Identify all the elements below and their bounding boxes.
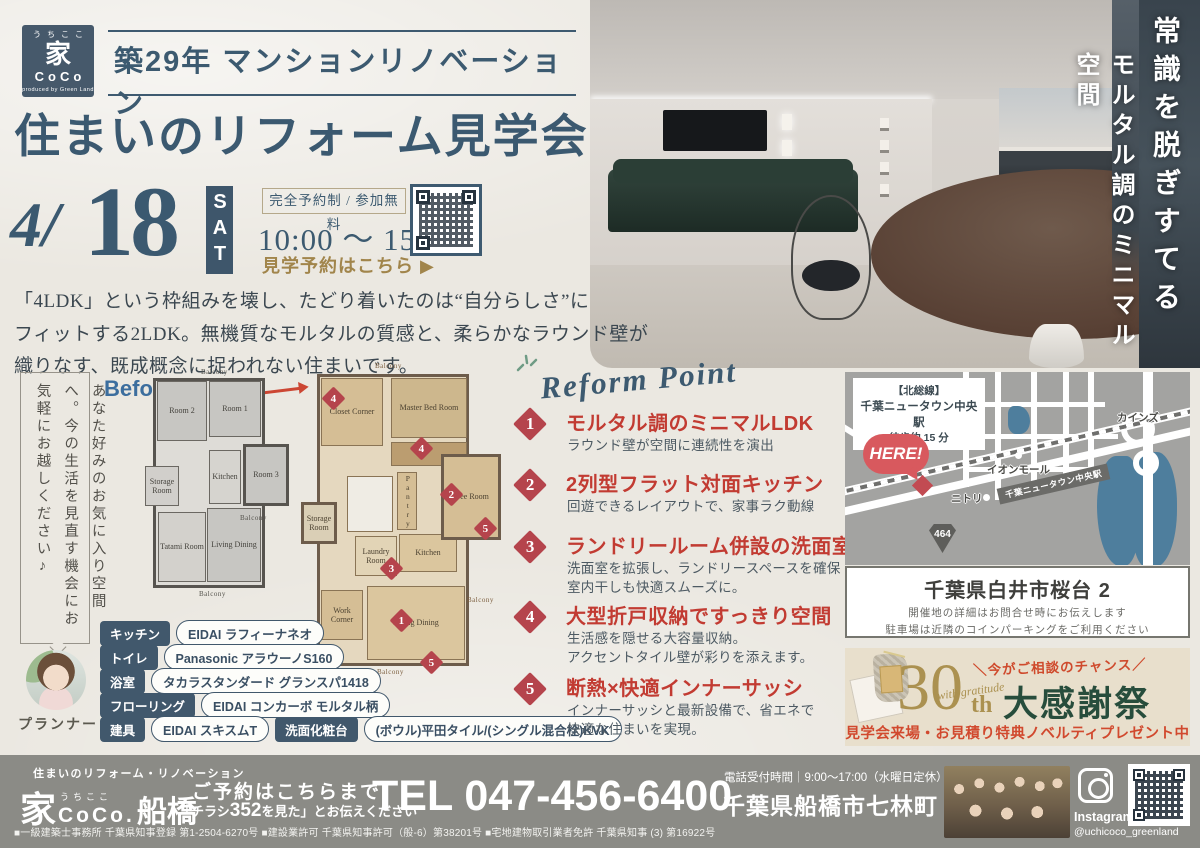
balcony-label: Balcony: [201, 368, 228, 376]
photo-caption-1: 常識を脱ぎすてる: [1144, 16, 1184, 320]
before-floor-plan: Balcony Room 2 Room 1 Storage Room Kitch…: [143, 368, 293, 600]
event-month: 4/: [10, 188, 60, 262]
qr-eye: [1133, 769, 1145, 781]
reform-point-desc: 洗面室を拡張し、ランドリースペースを確保: [567, 559, 841, 579]
room-label: Tatami Room: [158, 512, 206, 582]
spec-value: タカラスタンダード グランスパ1418: [151, 668, 381, 694]
footer-bar: 住まいのリフォーム・リノベーション 家 うちここ CoCo. 船橋 ご予約はこち…: [0, 755, 1200, 848]
logo-kanji: 家: [45, 40, 71, 69]
access-map: 【北総線】 千葉ニュータウン中央駅 徒歩約 15 分 HERE! カインズ イオ…: [845, 372, 1190, 565]
phone-number[interactable]: TEL 047-456-6400: [372, 772, 732, 821]
room-label: Room 3: [243, 444, 289, 506]
event-title: 住まいのリフォーム見学会: [14, 100, 589, 166]
event-weekday: SAT: [208, 191, 231, 269]
spec-label: 洗面化粧台: [275, 717, 358, 742]
reform-point-desc: アクセントタイル壁が彩りを添えます。: [567, 648, 813, 668]
qr-eye: [416, 236, 430, 250]
room-label: Pantry: [397, 472, 417, 530]
reform-point-number: 4: [513, 600, 547, 634]
spec-label: 浴室: [100, 669, 145, 694]
reform-point-desc: 快適な住まいを実現。: [567, 720, 705, 740]
balcony-label: Balcony: [240, 514, 267, 522]
footer-brand-furigana: うちここ: [60, 790, 112, 803]
intro-line-2: フィットする2LDK。無機質なモルタルの質感と、柔らかなラウンド壁が: [14, 319, 648, 352]
spec-label: 建具: [100, 717, 145, 742]
header-rule-top: [108, 30, 576, 32]
spec-value: Panasonic アラウーノS160: [164, 644, 345, 670]
balcony-label: Balcony: [199, 590, 226, 598]
event-weekday-box: SAT: [206, 186, 233, 274]
header-rule-bottom: [108, 94, 576, 96]
map-water: [1008, 406, 1030, 434]
phone-hours: 電話受付時間｜9:00〜17:00（水曜日定休）: [724, 769, 948, 785]
license-line: ■一級建築士事務所 千葉県知事登録 第1-2504-6270号 ■建設業許可 千…: [14, 824, 715, 839]
team-photo: [944, 766, 1070, 838]
map-poi-dot: [983, 494, 990, 501]
route-464-shield: 464: [929, 524, 956, 553]
shelf-niche: [782, 114, 792, 130]
spec-row: トイレ Panasonic アラウーノS160: [100, 644, 344, 670]
after-floor-plan: Balcony Closet Corner Master Bed Room St…: [305, 360, 510, 682]
tv-screen: [663, 110, 767, 150]
map-poi-label: カインズ: [1117, 410, 1159, 425]
qr-eye: [1173, 769, 1185, 781]
pantry-label: Pantry: [403, 474, 412, 528]
venue-note-2: 駐車場は近隣のコインパーキングをご利用ください: [847, 622, 1188, 637]
instagram-qr-code[interactable]: [1128, 764, 1190, 826]
sparkle-icon: [514, 352, 540, 376]
venue-box: 千葉県白井市桜台 2 開催地の詳細はお問合せ時にお伝えします 駐車場は近隣のコイ…: [845, 566, 1190, 638]
wall-slit-windows: [880, 118, 889, 199]
event-day: 18: [84, 164, 176, 279]
room-label: Room 2: [157, 381, 207, 441]
reform-point-title: 断熱×快適インナーサッシ: [566, 672, 803, 701]
balcony-label: Balcony: [377, 668, 404, 676]
anniversary-title: 大感謝祭: [1003, 676, 1151, 727]
spec-label: トイレ: [100, 645, 158, 670]
reform-point-title: ランドリールーム併設の洗面室: [566, 530, 852, 559]
spec-value: EIDAI ラフィーナネオ: [176, 620, 324, 646]
anniversary-note: 見学会来場・お見積り特典ノベルティプレゼント中: [845, 722, 1190, 743]
spec-row: キッチン EIDAI ラフィーナネオ: [100, 620, 324, 646]
station-line: 千葉ニュータウン中央駅: [855, 398, 983, 430]
reform-point-number: 3: [513, 530, 547, 564]
room-label: Living Dining: [367, 586, 465, 660]
intro-line-1: 「4LDK」という枠組みを壊し、たどり着いたのは“自分らしさ”に: [14, 286, 648, 319]
balcony-label: Balcony: [467, 596, 494, 604]
bath-area: [347, 476, 393, 532]
shelf-niche: [782, 140, 792, 156]
venue-note-1: 開催地の詳細はお問合せ時にお伝えします: [847, 605, 1188, 620]
reform-point-number: 2: [513, 468, 547, 502]
reform-point-title: 大型折戸収納ですっきり空間: [566, 600, 832, 629]
booking-qr-code[interactable]: [410, 184, 482, 256]
room-label: Storage Room: [145, 466, 179, 506]
anniversary-banner: ＼今がご相談のチャンス／ 30 with gratitude th 大感謝祭 見…: [845, 648, 1190, 746]
qr-eye: [462, 190, 476, 204]
reform-point-number: 1: [513, 407, 547, 441]
spec-label: フローリング: [100, 693, 195, 718]
reform-point-number: 5: [513, 672, 547, 706]
spec-row: 浴室 タカラスタンダード グランスパ1418: [100, 668, 381, 694]
instagram-handle[interactable]: @uchicoco_greenland: [1074, 826, 1179, 838]
reform-point-title: 2列型フラット対面キッチン: [566, 468, 824, 497]
room-label: Storage Room: [301, 502, 337, 544]
wire-chair: [791, 195, 870, 320]
brand-logo: うちここ 家 CoCo produced by Green Land: [22, 25, 94, 97]
reform-point-desc: 回遊できるレイアウトで、家事ラク動線: [567, 497, 815, 517]
spec-row: フローリング EIDAI コンカーボ モルタル柄: [100, 692, 390, 718]
logo-byline: produced by Green Land: [22, 87, 94, 93]
here-balloon: HERE!: [863, 434, 929, 474]
planner-message: あなた好みのお気に入り空間へ。今の生活を見直す機会にお気軽にお越しください♪: [28, 383, 111, 633]
reservation-badge: 完全予約制 / 参加無料: [262, 188, 406, 214]
logo-name: CoCo: [35, 69, 86, 84]
flyer: 常識を脱ぎすてる モルタル調のミニマル空間 うちここ 家 CoCo produc…: [0, 0, 1200, 848]
map-interchange: [1133, 450, 1159, 476]
qr-eye: [416, 190, 430, 204]
planner-role-label: プランナー: [18, 714, 98, 734]
room-label: Kitchen: [209, 450, 241, 504]
room-label: Room 1: [209, 381, 261, 437]
spec-value: EIDAI スキスムT: [151, 716, 269, 742]
reform-point-desc: 室内干しも快適スムーズに。: [567, 578, 746, 598]
reserve2-flyer-number: 352: [230, 800, 262, 821]
footer-brand-coco-wrap: うちここ CoCo.: [58, 794, 135, 828]
planner-speech-bubble: あなた好みのお気に入り空間へ。今の生活を見直す機会にお気軽にお越しください♪: [20, 372, 90, 644]
reserve2-pre: 「チラシ: [178, 804, 230, 819]
map-poi-label: イオンモール: [987, 462, 1050, 477]
room-label: Master Bed Room: [391, 378, 467, 438]
reform-point-desc: ラウンド壁が空間に連続性を演出: [567, 436, 774, 456]
interior-photo: 常識を脱ぎすてる モルタル調のミニマル空間: [590, 0, 1200, 368]
map-poi-label: ニトリ: [951, 491, 983, 506]
map-poi-dot: [1015, 452, 1022, 459]
reform-point-title: モルタル調のミニマルLDK: [566, 407, 814, 436]
balcony-label: Balcony: [375, 362, 402, 370]
venue-address: 千葉県白井市桜台 2: [847, 574, 1188, 603]
instagram-label: Instagram: [1074, 810, 1134, 824]
photo-caption-2: モルタル調のミニマル空間: [1068, 52, 1138, 368]
booking-cta[interactable]: 見学予約はこちら ▶: [262, 252, 435, 278]
anniversary-th: th: [971, 692, 992, 719]
reform-point-desc: インナーサッシと最新設備で、省エネで: [567, 701, 815, 721]
qr-eye: [1133, 809, 1145, 821]
spec-row: 建具 EIDAI スキスムT 洗面化粧台 (ボウル)平田タイル/(シングル混合栓…: [100, 716, 622, 742]
room-label: Work Corner: [321, 590, 363, 640]
instagram-icon[interactable]: [1078, 768, 1113, 803]
planner-avatar: [26, 650, 86, 710]
spec-label: キッチン: [100, 621, 170, 646]
spec-value: EIDAI コンカーボ モルタル柄: [201, 692, 390, 718]
station-line: 【北総線】: [855, 383, 983, 398]
reform-point-desc: 生活感を隠せる大容量収納。: [567, 629, 746, 649]
